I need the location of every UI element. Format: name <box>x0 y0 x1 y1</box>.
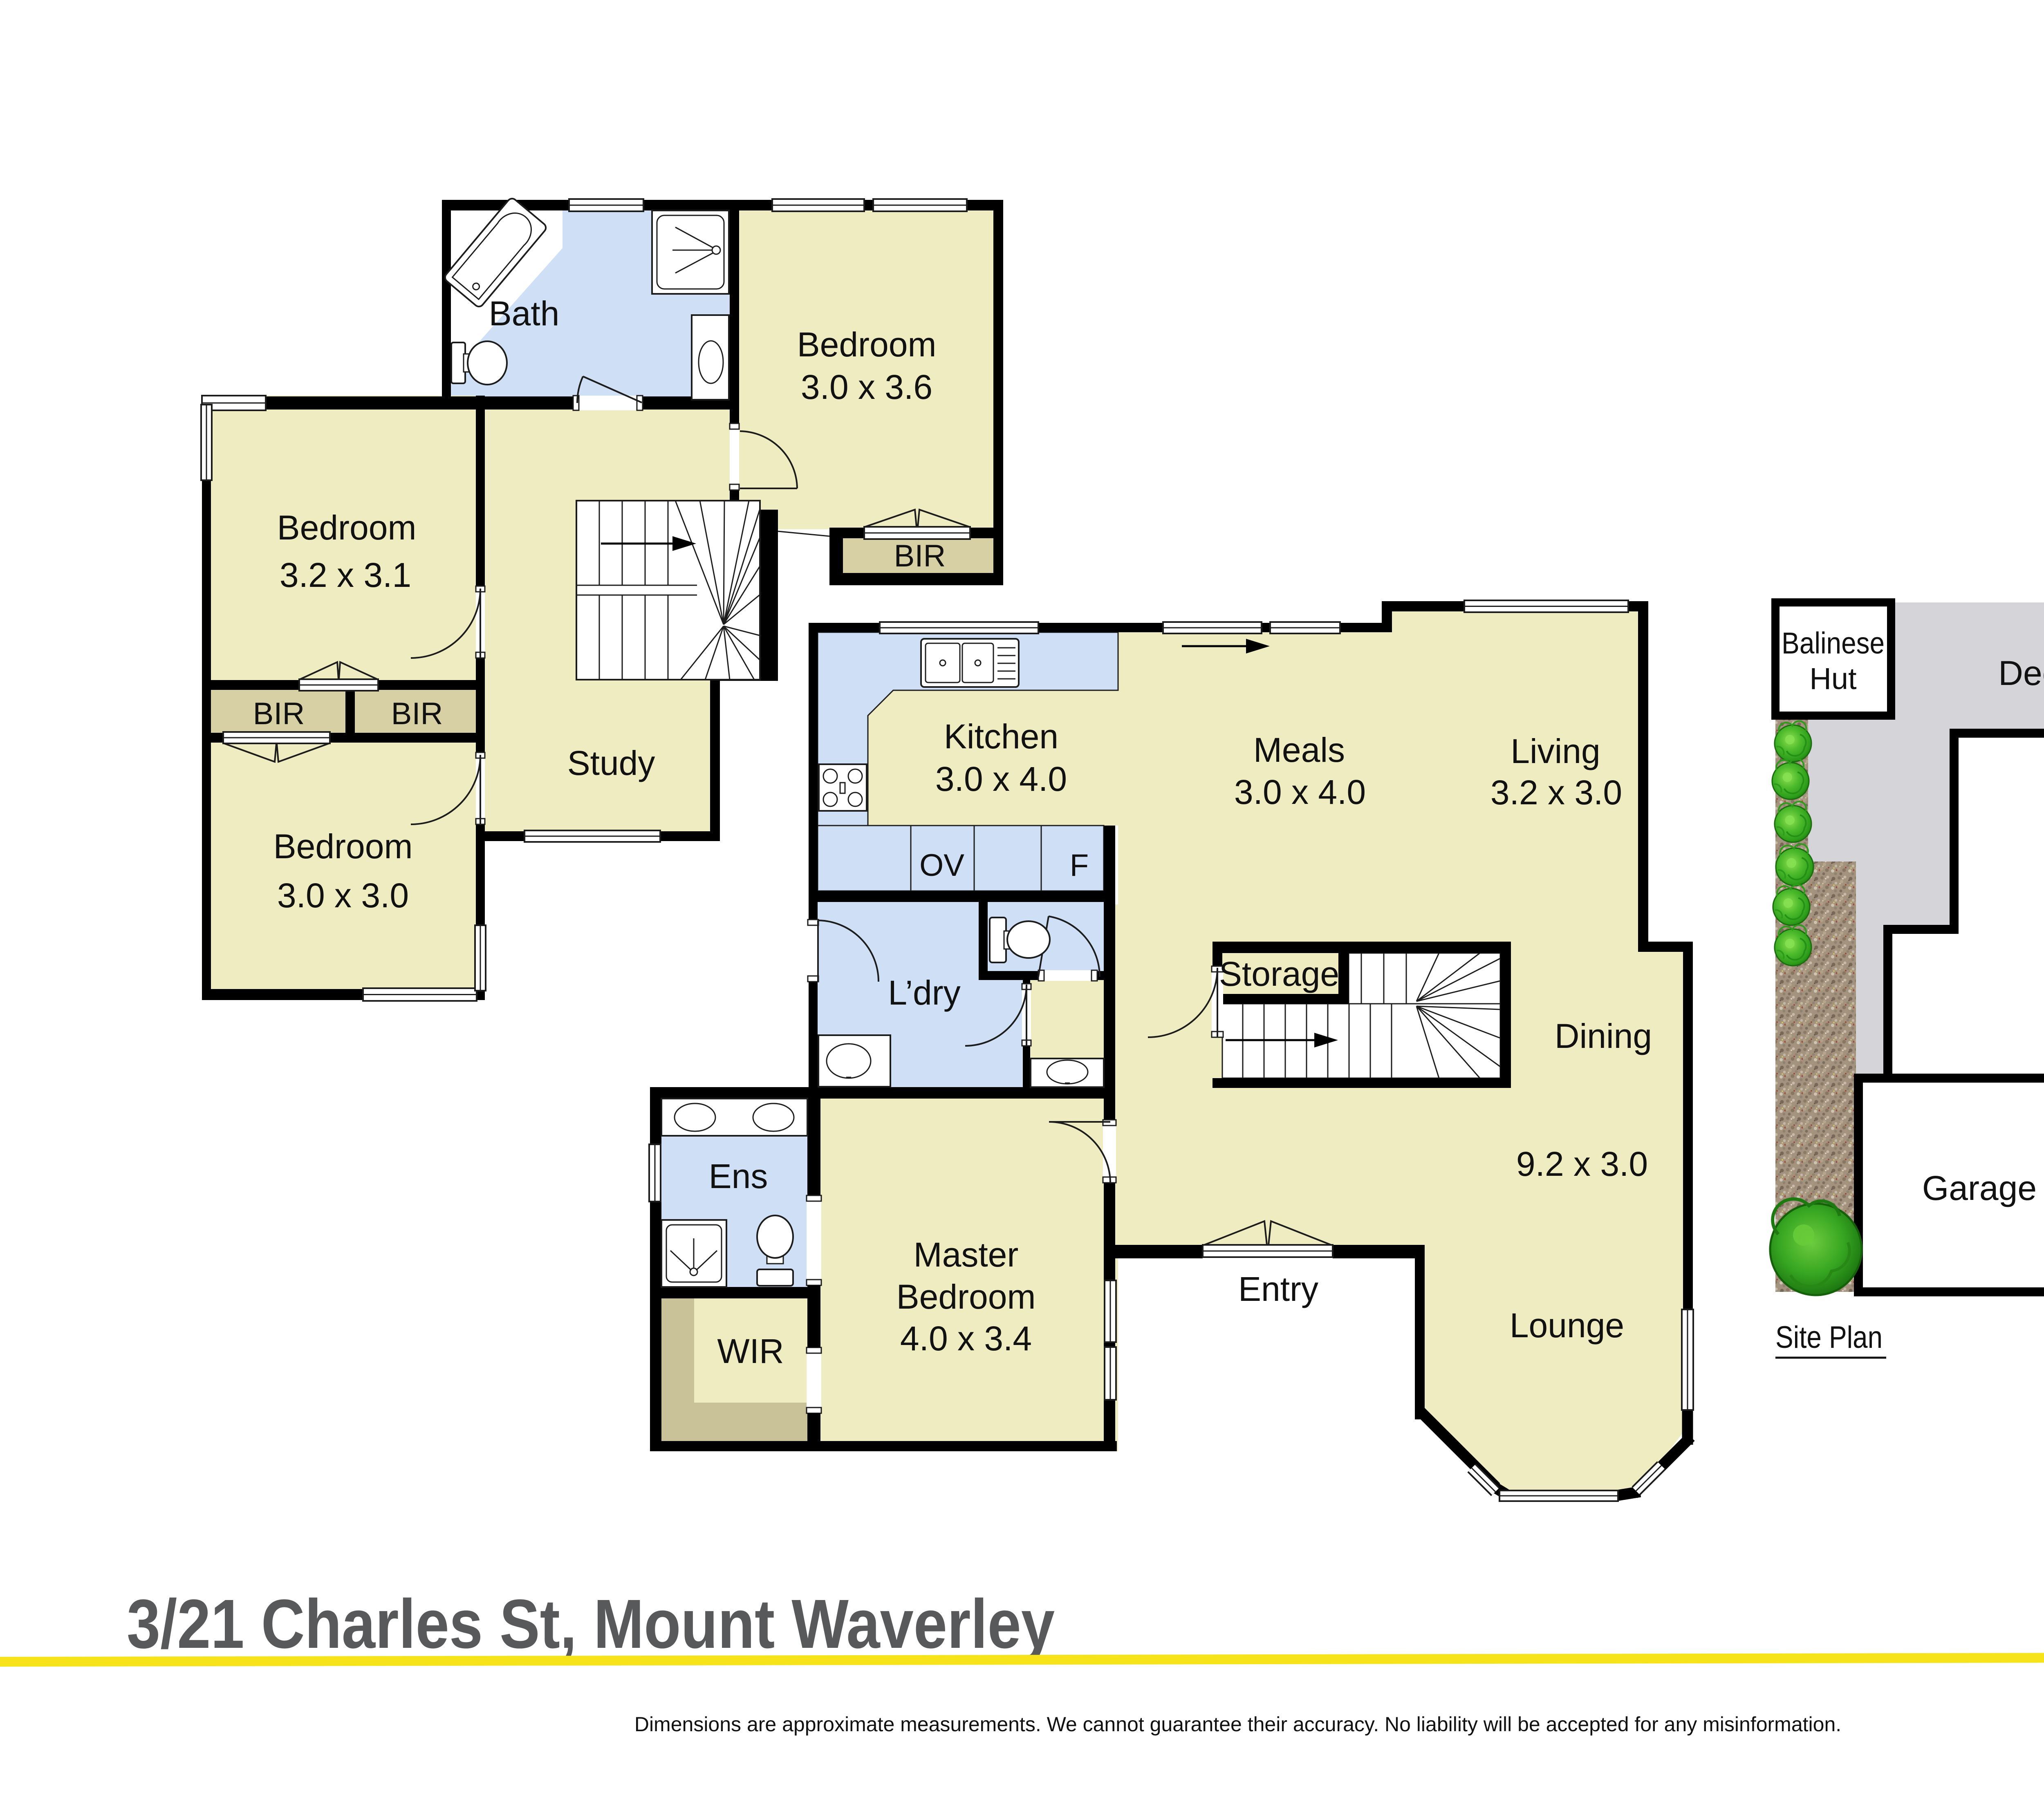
svg-text:3.2 x 3.1: 3.2 x 3.1 <box>280 556 411 594</box>
svg-text:Kitchen: Kitchen <box>944 717 1058 756</box>
svg-text:BIR: BIR <box>894 539 946 573</box>
svg-text:F: F <box>1070 848 1089 883</box>
svg-text:Site Plan: Site Plan <box>1775 1320 1883 1355</box>
svg-text:3.0 x 3.6: 3.0 x 3.6 <box>801 368 932 406</box>
svg-text:BIR: BIR <box>253 696 305 731</box>
svg-text:Hut: Hut <box>1809 662 1857 696</box>
svg-text:L’dry: L’dry <box>888 973 960 1012</box>
svg-text:WIR: WIR <box>717 1332 784 1370</box>
svg-text:Storage: Storage <box>1219 955 1339 993</box>
svg-text:4.0 x 3.4: 4.0 x 3.4 <box>900 1319 1032 1358</box>
svg-text:Garage: Garage <box>1922 1169 2037 1207</box>
svg-text:Bedroom: Bedroom <box>273 827 413 866</box>
svg-text:Ens: Ens <box>709 1157 768 1195</box>
svg-text:Balinese: Balinese <box>1782 626 1885 660</box>
svg-text:Meals: Meals <box>1253 731 1345 769</box>
svg-text:Study: Study <box>567 744 655 782</box>
svg-text:3.2 x 3.0: 3.2 x 3.0 <box>1490 773 1622 812</box>
svg-text:3/21 Charles St, Mount Waverle: 3/21 Charles St, Mount Waverley <box>127 1585 1055 1663</box>
svg-text:Bath: Bath <box>489 294 560 333</box>
svg-text:9.2 x 3.0: 9.2 x 3.0 <box>1516 1145 1648 1183</box>
svg-text:Entry: Entry <box>1238 1270 1318 1308</box>
svg-text:Dimensions are approximate mea: Dimensions are approximate measurements.… <box>634 1713 1841 1736</box>
svg-text:3.0 x 4.0: 3.0 x 4.0 <box>935 760 1067 798</box>
svg-text:Bedroom: Bedroom <box>896 1278 1036 1316</box>
svg-text:Dining: Dining <box>1555 1017 1652 1055</box>
svg-text:Bedroom: Bedroom <box>277 508 417 547</box>
svg-text:3.0 x 4.0: 3.0 x 4.0 <box>1234 773 1366 811</box>
svg-text:BIR: BIR <box>391 696 443 731</box>
svg-text:OV: OV <box>919 848 964 883</box>
svg-text:3.0 x 3.0: 3.0 x 3.0 <box>277 876 409 915</box>
svg-text:Deck: Deck <box>1998 654 2044 692</box>
svg-text:Lounge: Lounge <box>1510 1306 1624 1345</box>
svg-text:Master: Master <box>914 1235 1019 1274</box>
svg-text:Living: Living <box>1511 732 1600 770</box>
svg-text:Bedroom: Bedroom <box>797 325 937 364</box>
